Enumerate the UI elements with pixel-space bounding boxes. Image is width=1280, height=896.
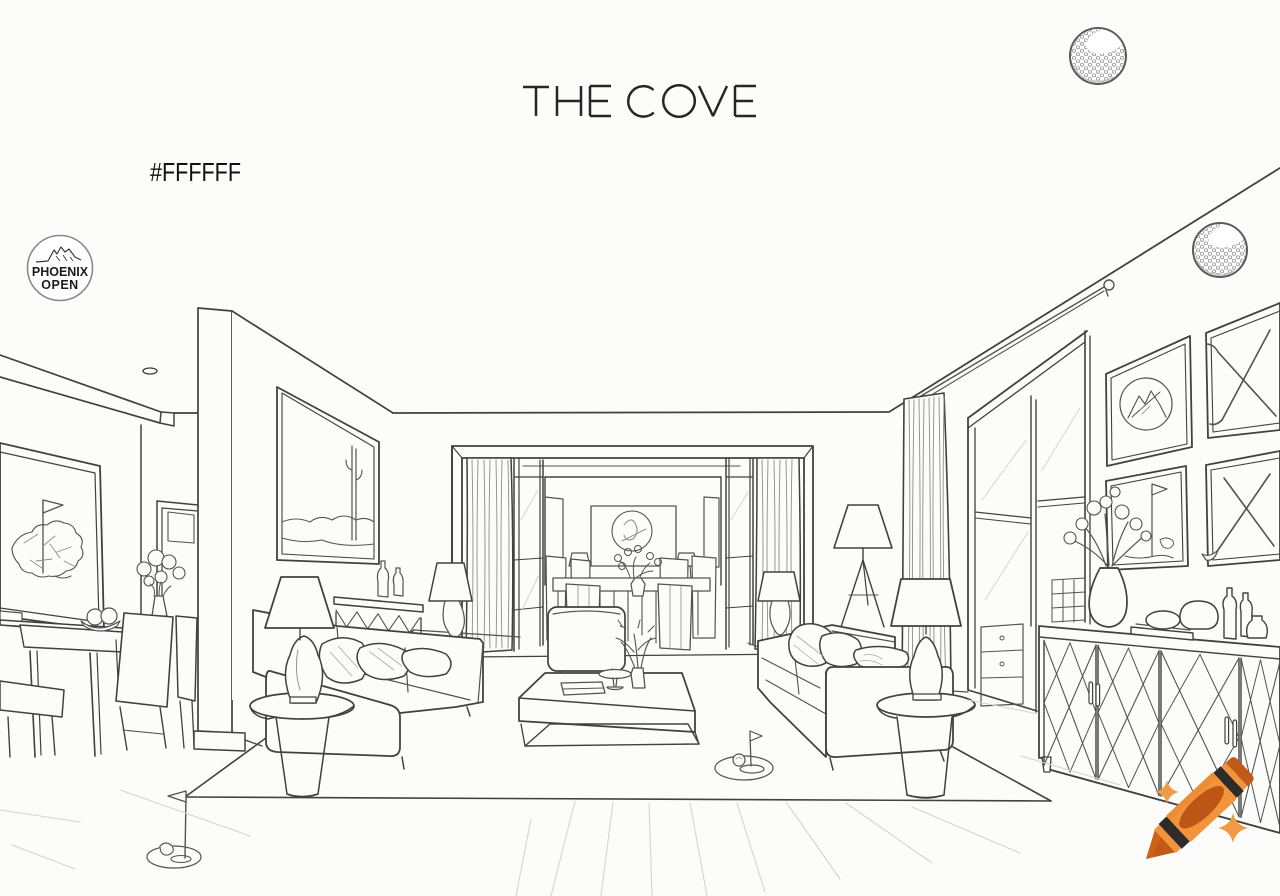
svg-text:PHOENIX: PHOENIX [32,265,89,279]
svg-text:#FFFFFF: #FFFFFF [150,157,241,187]
svg-text:OPEN: OPEN [41,278,78,292]
